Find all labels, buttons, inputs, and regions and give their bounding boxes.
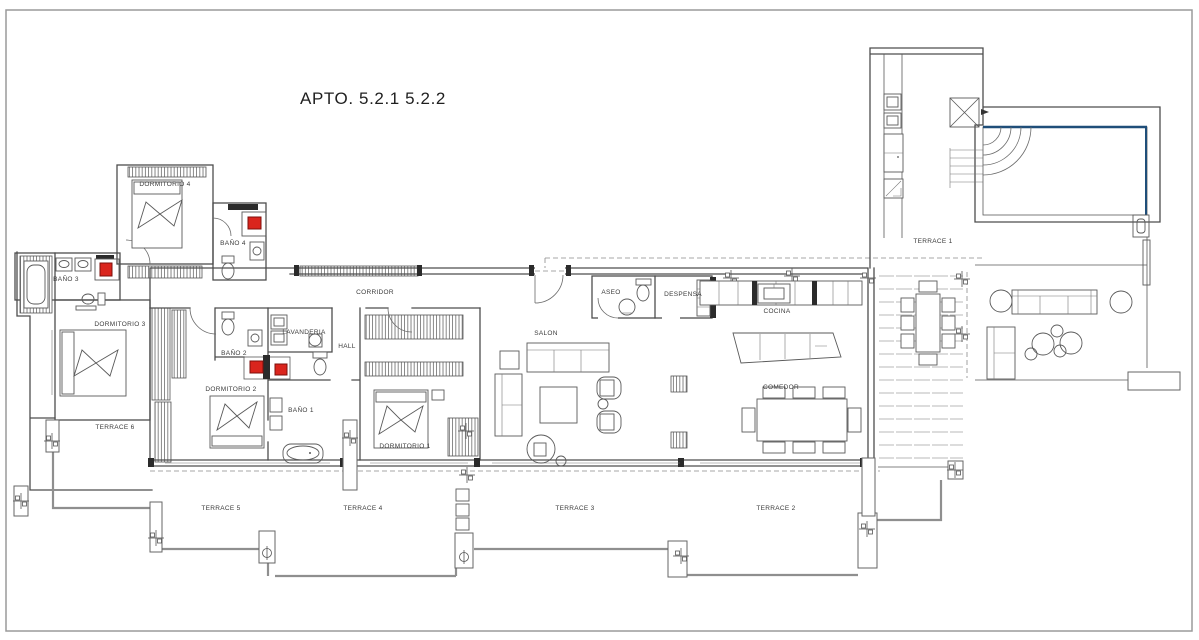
red-marker-bano-1 [275,364,287,375]
label-bano-3: BAÑO 3 [53,274,79,283]
label-cocina: COCINA [763,308,790,315]
label-despensa: DESPENSA [664,291,702,298]
label-dormitorio-1: DORMITORIO 1 [379,443,430,450]
plan-title: APTO. 5.2.1 5.2.2 [300,89,446,108]
kitchen-counter [700,281,862,305]
label-terrace-6: TERRACE 6 [95,424,134,431]
bed-dormitorio-2 [210,396,264,448]
label-terrace-3: TERRACE 3 [555,505,594,512]
red-marker-bano-4 [248,217,261,229]
label-terrace-2: TERRACE 2 [756,505,795,512]
label-dormitorio-3: DORMITORIO 3 [94,321,145,328]
red-marker-bano-2 [250,361,263,373]
floor-plan-svg: APTO. 5.2.1 5.2.2 [0,0,1199,640]
label-terrace-1: TERRACE 1 [913,238,952,245]
label-bano-2: BAÑO 2 [221,348,247,357]
label-bano-4: BAÑO 4 [220,238,246,247]
label-comedor: COMEDOR [763,384,799,391]
label-salon: SALON [534,330,558,337]
label-hall: HALL [338,343,356,350]
floor-plan-page: APTO. 5.2.1 5.2.2 [0,0,1199,640]
label-lavanderia: LAVANDERIA [282,329,326,336]
label-terrace-5: TERRACE 5 [201,505,240,512]
bed-dormitorio-4 [132,180,182,248]
label-dormitorio-4: DORMITORIO 4 [139,181,190,188]
label-dormitorio-2: DORMITORIO 2 [205,386,256,393]
red-marker-bano-3 [100,263,112,276]
label-bano-1: BAÑO 1 [288,405,314,414]
label-aseo: ASEO [601,289,620,296]
bed-dormitorio-3 [60,330,126,396]
label-corridor: CORRIDOR [356,289,394,296]
label-terrace-4: TERRACE 4 [343,505,382,512]
